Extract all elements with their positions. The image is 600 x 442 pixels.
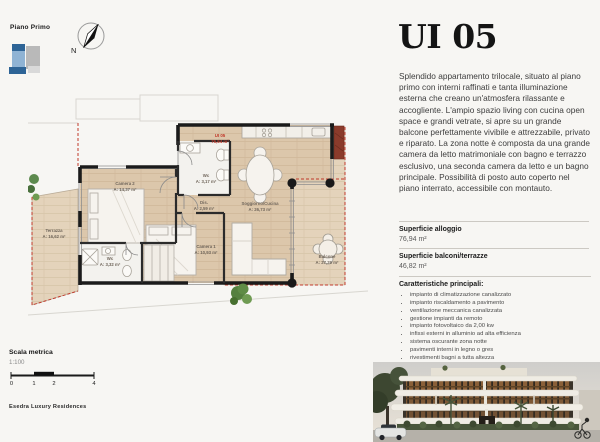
compass-needle [80, 22, 102, 50]
scale-bar: 0 1 2 4 [9, 369, 105, 387]
render-road [373, 430, 600, 442]
floor-plan: Terrazza A: 16,62 m² Camera 2 A: 14,37 m… [28, 93, 368, 341]
room-area-camera1: A: 10,93 m² [195, 250, 218, 255]
unit-description: Splendido appartamento trilocale, situat… [399, 71, 590, 194]
room-label-wc-bottom: Wc [107, 256, 114, 261]
icon-building-gray-block [26, 46, 40, 69]
feature-item: sistema oscurante zona notte [410, 339, 591, 346]
room-area-camera2: A: 14,37 m² [114, 187, 137, 192]
room-label-soggiorno: Soggiorno/Cucina [242, 201, 280, 206]
bed-icon-camera2 [88, 189, 144, 243]
scale-ratio: 1:100 [9, 359, 24, 366]
feature-item: ventilazione meccanica canalizzata [410, 308, 591, 315]
surface-label: Superficie alloggio [399, 226, 589, 233]
room-area-soggiorno: A: 26,73 m² [249, 207, 272, 212]
wardrobe-icon [144, 245, 174, 281]
surface-label: Superficie balconi/terrazze [399, 253, 589, 260]
building-floor-icon [9, 42, 47, 78]
surface-value: 46,82 m² [399, 263, 589, 270]
north-compass-icon: N [70, 20, 110, 60]
terrace-floor [32, 189, 78, 305]
room-label-terrazza: Terrazza [45, 228, 63, 233]
feature-item: infissi esterni in alluminio ad alta eff… [410, 331, 591, 338]
surface-row-balconi: Superficie balconi/terrazze 46,82 m² [399, 248, 589, 275]
scale-heading: Scala metrica [9, 349, 53, 356]
unit-title: UI 05 [398, 20, 598, 53]
room-area-balcone: A: 27,29 m² [316, 260, 339, 265]
kitchen-counter-icon [242, 126, 332, 138]
icon-building-highlight-floor [12, 51, 25, 68]
room-area-wc-top: A: 3,17 m² [196, 179, 217, 184]
room-label-wc-top: Wc [203, 173, 210, 178]
brochure-page: { "header": { "floor_label": "Piano Prim… [0, 0, 600, 442]
scale-tick-4: 4 [92, 381, 96, 387]
unit-tag-name: UI 05 [215, 133, 226, 138]
icon-building-lightgray-block [28, 66, 40, 73]
scale-tick-0: 0 [10, 381, 13, 387]
brand-text: Esedra Luxury Residences [9, 404, 87, 410]
feature-section: Caratteristiche principali: impianto di … [399, 276, 591, 370]
unit-tag-area: 76,94 m² [211, 139, 229, 144]
surface-section: Superficie alloggio 76,94 m² Superficie … [399, 221, 589, 275]
compass-north-label: N [71, 46, 76, 55]
feature-item: rivestimenti bagni a tutta altezza [410, 355, 591, 362]
feature-item: gestione impianti da remoto [410, 316, 591, 323]
scale-tick-2: 2 [52, 381, 55, 387]
room-label-balcone: Balcone [319, 254, 336, 259]
feature-item: impianto riscaldamento a pavimento [410, 300, 591, 307]
feature-item: impianto fotovoltaico da 2,00 kw [410, 323, 591, 330]
room-label-dis: Dis. [200, 200, 208, 205]
icon-building-roof [12, 44, 25, 51]
room-area-terrazza: A: 16,62 m² [43, 234, 66, 239]
feature-item: pavimenti interni in legno o gres [410, 347, 591, 354]
feature-list: impianto di climatizzazione canalizzato … [399, 292, 591, 369]
floor-label: Piano Primo [10, 24, 50, 31]
room-area-wc-bottom: A: 3,32 m² [100, 262, 121, 267]
red-wall-feature [334, 126, 344, 159]
icon-building-base [9, 67, 26, 74]
feature-item: impianto di climatizzazione canalizzato [410, 292, 591, 299]
features-heading: Caratteristiche principali: [399, 281, 591, 288]
surface-value: 76,94 m² [399, 236, 589, 243]
scale-tick-1: 1 [32, 381, 35, 387]
room-label-camera2: Camera 2 [115, 181, 135, 186]
room-area-dis: A: 2,59 m² [194, 206, 215, 211]
room-label-camera1: Camera 1 [196, 244, 216, 249]
surface-row-alloggio: Superficie alloggio 76,94 m² [399, 221, 589, 248]
building-render-image [373, 362, 600, 442]
